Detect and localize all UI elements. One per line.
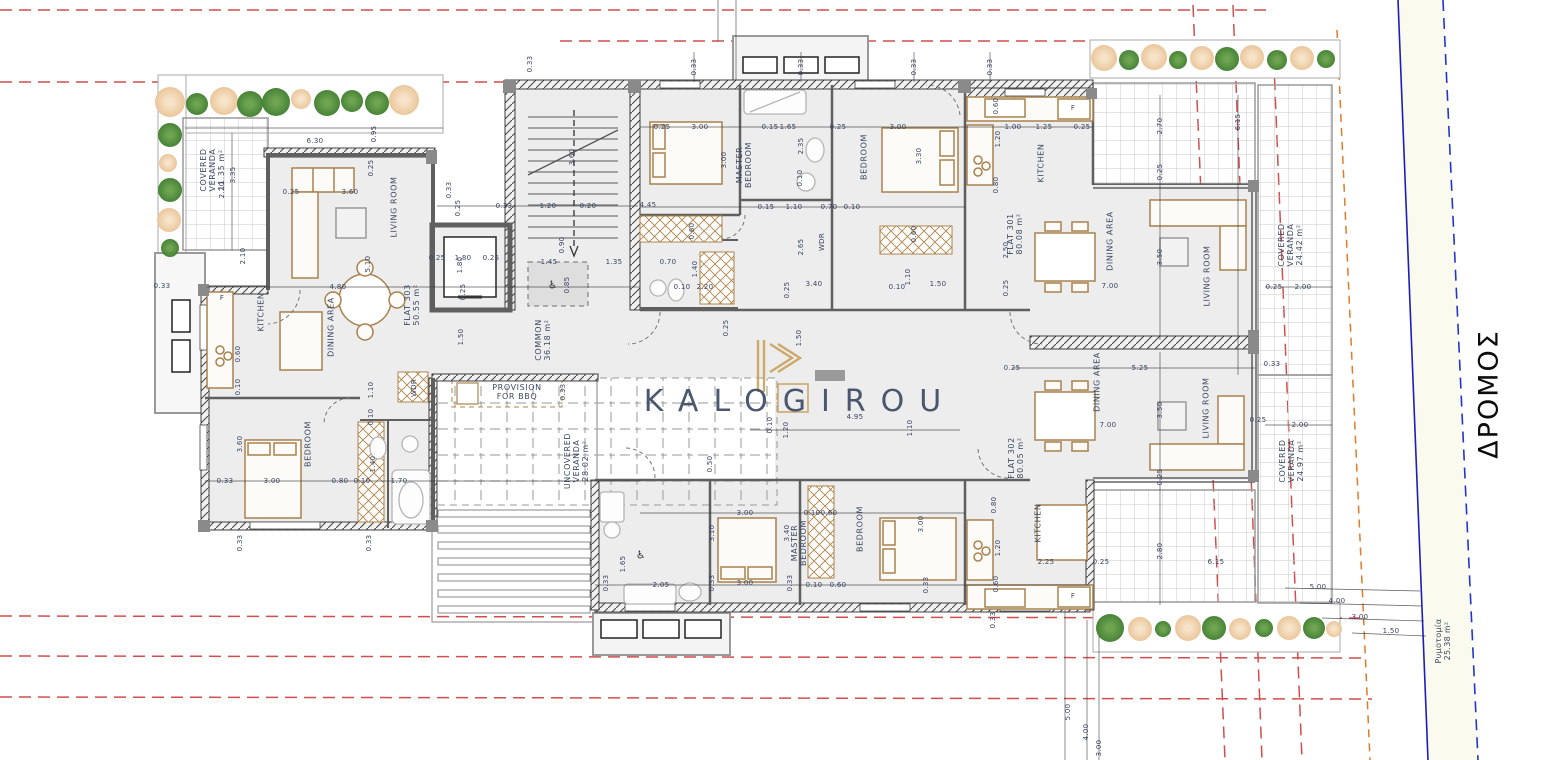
floor-plan-drawing [0, 0, 1547, 760]
brand-logo: KALOGIROU [644, 385, 956, 420]
sidewalk-area-label: Ρυμοτομία 25.38 m² [1434, 619, 1452, 664]
setback-line-orange [1337, 30, 1370, 760]
floor-plan-canvas: COVERED VERANDA 11.35 m²LIVING ROOMKITCH… [0, 0, 1547, 760]
road-label: ΔΡΟΜΟΣ [1473, 329, 1504, 459]
